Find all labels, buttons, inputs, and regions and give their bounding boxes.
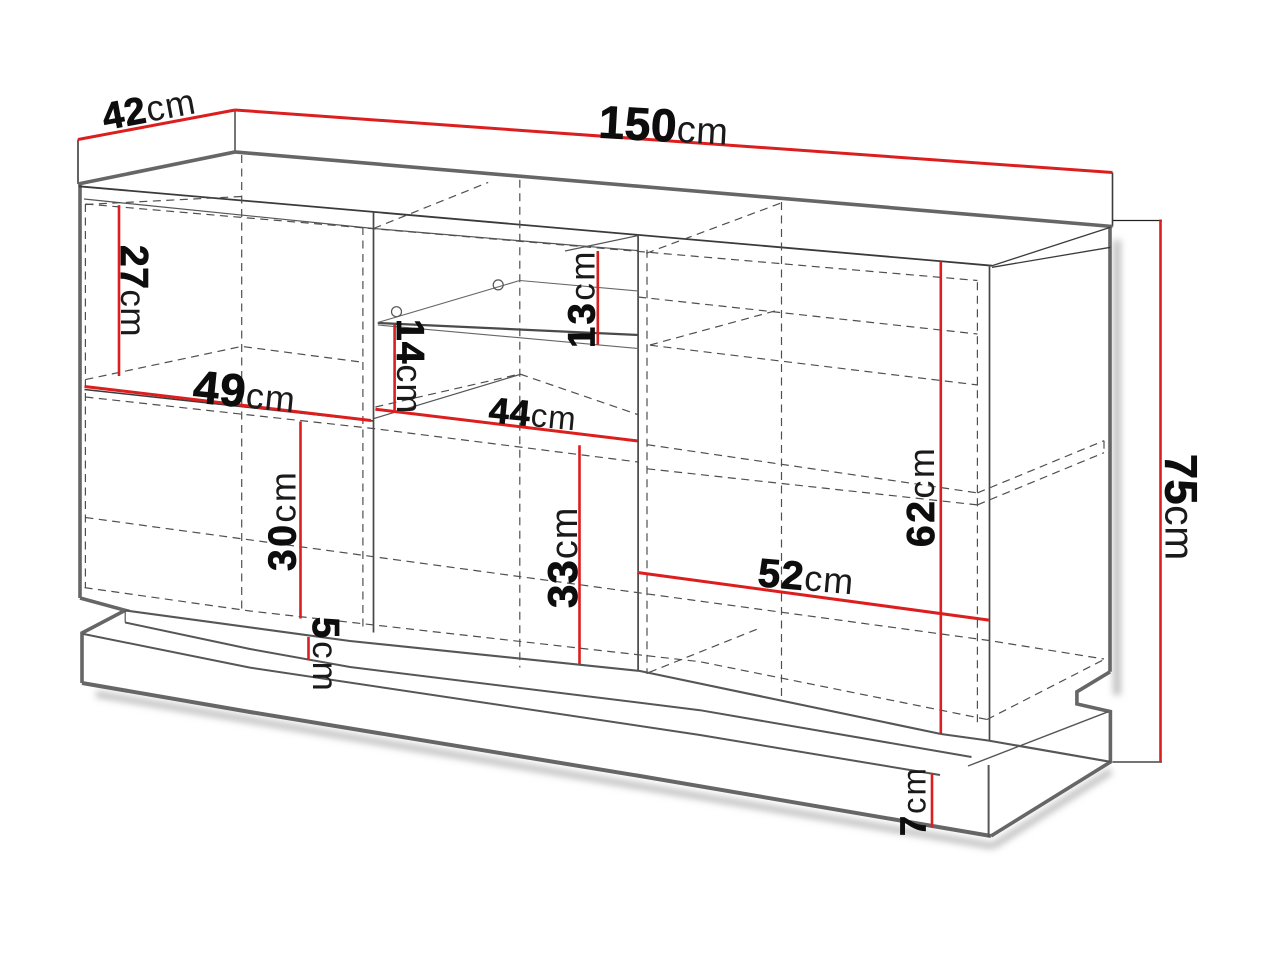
svg-text:150cm: 150cm <box>597 96 730 155</box>
svg-text:62cm: 62cm <box>900 446 943 547</box>
svg-text:27cm: 27cm <box>112 245 155 337</box>
svg-text:30cm: 30cm <box>262 470 305 571</box>
svg-text:33cm: 33cm <box>539 507 586 608</box>
svg-text:75cm: 75cm <box>1156 454 1207 561</box>
svg-text:14cm: 14cm <box>388 319 431 414</box>
svg-text:5cm: 5cm <box>304 617 346 694</box>
svg-text:42cm: 42cm <box>99 80 199 138</box>
svg-text:49cm: 49cm <box>191 360 299 422</box>
svg-text:52cm: 52cm <box>756 551 856 603</box>
svg-text:13cm: 13cm <box>562 249 604 348</box>
svg-text:44cm: 44cm <box>487 389 579 438</box>
svg-text:7cm: 7cm <box>893 766 934 836</box>
